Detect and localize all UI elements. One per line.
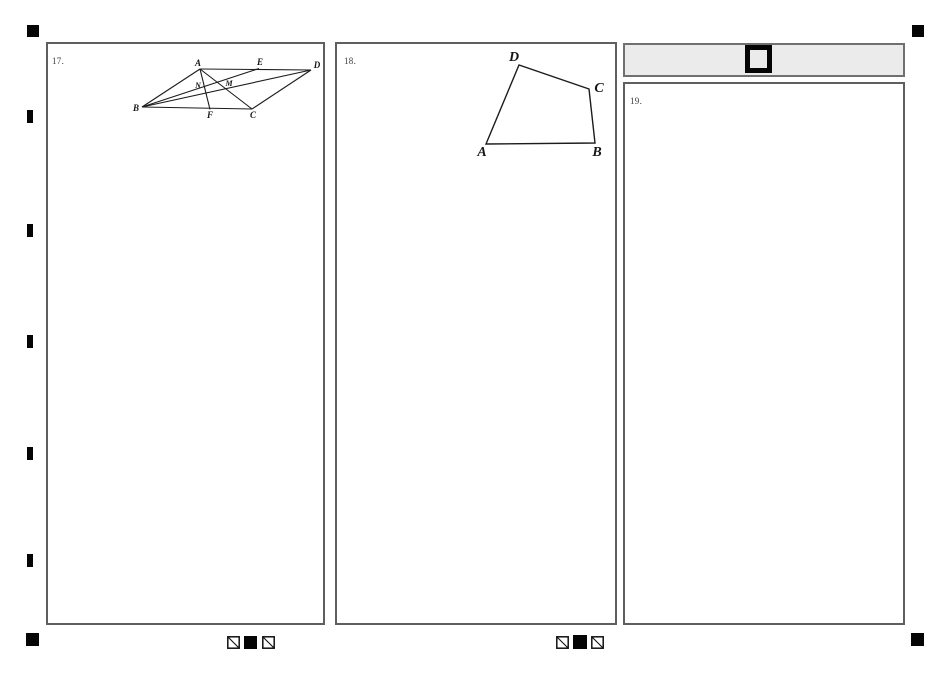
vertex-label-c: C [250,110,257,120]
vertex-label-b: B [591,145,601,160]
diagonal-box-icon [262,636,275,649]
timing-mark [27,335,33,348]
registration-mark-bottom-right [911,633,924,646]
point-label-n: N [194,81,202,90]
question-19-header-strip [623,43,905,77]
filled-box-icon [573,635,587,649]
vertex-label-f: F [206,110,213,120]
question-18-panel: 18. A B C D [335,42,617,625]
edge-ab [142,69,200,107]
registration-mark-bottom-left [26,633,39,646]
registration-mark-top-left [27,25,39,37]
answer-sheet-page: 17. A E D B F C N M [0,0,950,674]
hollow-square-icon [745,45,772,73]
vertex-label-c: C [594,81,604,96]
diagonal-box-icon [591,636,604,649]
vertex-label-d: D [313,60,321,70]
vertex-label-d: D [508,50,519,65]
timing-mark [27,447,33,460]
edge-bc [142,107,252,109]
question-17-panel: 17. A E D B F C N M [46,42,325,625]
timing-mark [27,224,33,237]
timing-mark [27,554,33,567]
question-19-panel: 19. [623,82,905,625]
question-19-number: 19. [630,96,642,106]
vertex-label-e: E [256,57,263,67]
quadrilateral-abcd [486,65,595,144]
vertex-label-a: A [476,145,486,160]
filled-box-icon [244,636,257,649]
point-label-m: M [224,79,233,88]
figure-17-parallelogram: A E D B F C N M [48,44,327,164]
vertex-label-b: B [132,103,139,113]
timing-mark [27,110,33,123]
diagonal-bd [142,70,311,107]
vertex-label-a: A [194,58,201,68]
diagonal-box-icon [556,636,569,649]
figure-17-lines [142,69,311,110]
figure-18-quadrilateral: A B C D [337,44,619,174]
diagonal-box-icon [227,636,240,649]
registration-mark-top-right [912,25,924,37]
edge-cd [252,70,311,109]
